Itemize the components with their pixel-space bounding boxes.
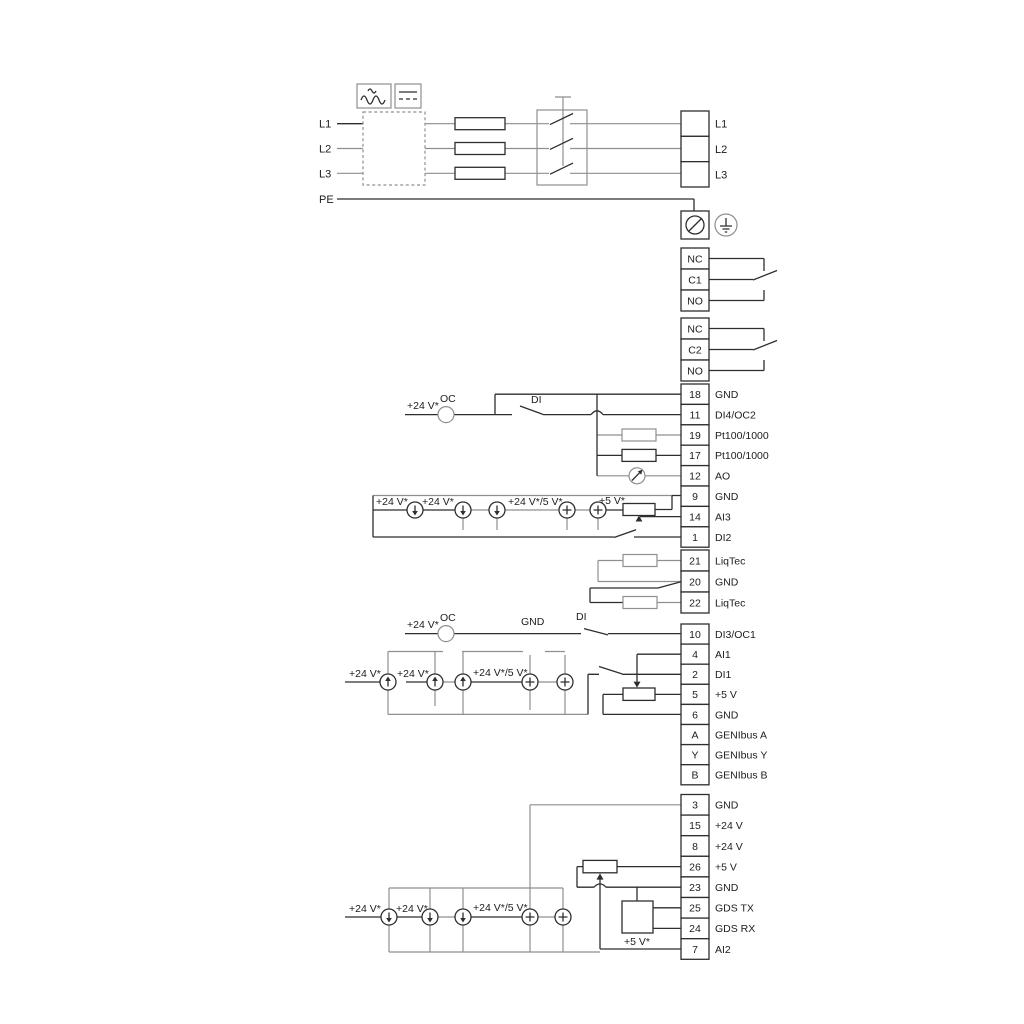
terminal-number: 3 bbox=[692, 800, 698, 812]
terminal-number: 9 bbox=[692, 491, 698, 503]
relay-terminal-label: NC bbox=[687, 253, 703, 265]
phase-input-label: L2 bbox=[319, 144, 331, 156]
terminal-label: +5 V bbox=[715, 861, 737, 873]
label-open-collector: OC bbox=[440, 612, 456, 624]
terminal-label: Pt100/1000 bbox=[715, 450, 769, 462]
black-wires bbox=[337, 114, 777, 950]
terminal-label: DI1 bbox=[715, 669, 732, 681]
terminal-label: LiqTec bbox=[715, 555, 745, 567]
terminal-number: 12 bbox=[689, 471, 701, 483]
terminal-label: GENIbus B bbox=[715, 770, 768, 782]
terminal-number: 2 bbox=[692, 669, 698, 681]
terminal-label: GENIbus A bbox=[715, 729, 767, 741]
terminal-label: GND bbox=[715, 709, 739, 721]
ac-wave-icon bbox=[357, 84, 391, 108]
terminal-label: DI3/OC1 bbox=[715, 629, 756, 641]
label-digital-input: DI bbox=[576, 611, 587, 623]
dc-link-icon bbox=[395, 84, 421, 108]
terminal-number: 26 bbox=[689, 861, 701, 873]
terminal-number: 18 bbox=[689, 389, 701, 401]
relay-terminal-label: C2 bbox=[688, 344, 702, 356]
terminal-number: A bbox=[691, 729, 698, 741]
terminal-label: LiqTec bbox=[715, 597, 745, 609]
power-terminal-label: L2 bbox=[715, 144, 727, 156]
current-source-down-icon bbox=[455, 909, 471, 925]
terminal-number: 23 bbox=[689, 882, 701, 894]
label-supply-24v: +24 V* bbox=[396, 903, 428, 915]
current-source-down-icon bbox=[407, 502, 423, 518]
phase-input-label: L3 bbox=[319, 168, 331, 180]
fuse-icon bbox=[455, 118, 505, 180]
power-terminal-label: L1 bbox=[715, 119, 727, 131]
rfi-filter-box bbox=[363, 112, 425, 185]
voltage-source-plus-icon bbox=[557, 674, 573, 690]
power-terminal-cell bbox=[681, 136, 709, 161]
terminal-number: 4 bbox=[692, 649, 698, 661]
potentiometer-icon bbox=[623, 682, 655, 701]
terminal-number: 10 bbox=[689, 629, 701, 641]
terminal-number: 20 bbox=[689, 576, 701, 588]
terminal-label: +5 V bbox=[715, 689, 737, 701]
terminal-label: GND bbox=[715, 882, 739, 894]
power-terminal-label: L3 bbox=[715, 169, 727, 181]
label-supply-24v: +24 V* bbox=[349, 903, 381, 915]
label-open-collector: OC bbox=[440, 393, 456, 405]
label-supply-24v: +24 V* bbox=[349, 668, 381, 680]
terminal-label: GND bbox=[715, 389, 739, 401]
terminal-number: 22 bbox=[689, 597, 701, 609]
terminal-label: GND bbox=[715, 576, 739, 588]
terminal-label: +24 V bbox=[715, 841, 743, 853]
terminal-number: 14 bbox=[689, 511, 701, 523]
terminal-number: 21 bbox=[689, 555, 701, 567]
voltage-source-plus-icon bbox=[555, 909, 571, 925]
label-supply-24v: +24 V* bbox=[407, 619, 439, 631]
current-source-down-icon bbox=[489, 502, 505, 518]
terminal-number: 25 bbox=[689, 903, 701, 915]
pe-label: PE bbox=[319, 194, 334, 206]
relay-terminal-label: NC bbox=[687, 323, 703, 335]
terminal-label: Pt100/1000 bbox=[715, 430, 769, 442]
terminal-number: 7 bbox=[692, 944, 698, 956]
current-source-up-icon bbox=[427, 674, 443, 690]
terminal-label: AI2 bbox=[715, 944, 731, 956]
relay-terminal-label: NO bbox=[687, 365, 703, 377]
screw-terminal-icon bbox=[681, 211, 709, 239]
terminal-label: AI3 bbox=[715, 511, 731, 523]
relay-terminal-label: NO bbox=[687, 295, 703, 307]
label-gnd: GND bbox=[521, 616, 545, 628]
terminal-number: 24 bbox=[689, 923, 701, 935]
source-symbols bbox=[380, 502, 606, 925]
terminal-label: AO bbox=[715, 471, 730, 483]
terminal-label: GENIbus Y bbox=[715, 749, 767, 761]
label-supply-24v: +24 V* bbox=[422, 496, 454, 508]
resistor-icon bbox=[623, 555, 657, 567]
earth-ground-icon bbox=[715, 214, 737, 236]
terminal-label: DI4/OC2 bbox=[715, 409, 756, 421]
terminal-number: 19 bbox=[689, 430, 701, 442]
label-digital-input: DI bbox=[531, 394, 542, 406]
label-supply-5v: +5 V* bbox=[599, 495, 625, 507]
power-terminal-cell bbox=[681, 162, 709, 187]
terminal-label: GDS TX bbox=[715, 903, 754, 915]
terminal-label: +24 V bbox=[715, 820, 743, 832]
terminal-number: 8 bbox=[692, 841, 698, 853]
terminal-label: GDS RX bbox=[715, 923, 755, 935]
terminal-number: 15 bbox=[689, 820, 701, 832]
phase-input-label: L1 bbox=[319, 119, 331, 131]
resistor-icon bbox=[623, 597, 657, 609]
label-supply-24v: +24 V* bbox=[397, 668, 429, 680]
relay-terminal-label: C1 bbox=[688, 274, 702, 286]
current-source-up-icon bbox=[380, 674, 396, 690]
terminal-number: 1 bbox=[692, 532, 698, 544]
open-collector-icon bbox=[438, 407, 454, 423]
gds-sensor-box bbox=[622, 901, 653, 933]
terminal-label: AI1 bbox=[715, 649, 731, 661]
terminal-number: B bbox=[691, 770, 698, 782]
analog-output-meter-icon bbox=[629, 468, 645, 484]
label-supply-24v: +24 V* bbox=[407, 400, 439, 412]
terminal-label: GND bbox=[715, 491, 739, 503]
terminal-number: 6 bbox=[692, 709, 698, 721]
wiring-diagram-page: L1L2L3NCC1NONCC2NO18GND11DI4/OC219Pt100/… bbox=[0, 0, 1024, 1024]
current-source-up-icon bbox=[455, 674, 471, 690]
open-collector-icon bbox=[438, 626, 454, 642]
current-source-down-icon bbox=[455, 502, 471, 518]
potentiometer-icon bbox=[623, 504, 655, 522]
gray-wires bbox=[337, 97, 681, 952]
resistor-icon bbox=[622, 449, 656, 461]
potentiometer-icon bbox=[583, 860, 617, 879]
terminal-label: DI2 bbox=[715, 532, 732, 544]
resistor-icon bbox=[622, 429, 656, 441]
terminal-number: 5 bbox=[692, 689, 698, 701]
power-terminal-cell bbox=[681, 111, 709, 136]
label-supply-24v-5v: +24 V*/5 V* bbox=[473, 902, 528, 914]
label-supply-24v: +24 V* bbox=[376, 496, 408, 508]
label-supply-5v: +5 V* bbox=[624, 936, 650, 948]
terminal-label: GND bbox=[715, 800, 739, 812]
terminal-number: 17 bbox=[689, 450, 701, 462]
current-source-down-icon bbox=[381, 909, 397, 925]
label-supply-24v-5v: +24 V*/5 V* bbox=[508, 496, 563, 508]
wiring-diagram: L1L2L3NCC1NONCC2NO18GND11DI4/OC219Pt100/… bbox=[0, 0, 1024, 1024]
terminal-number: Y bbox=[691, 749, 698, 761]
label-supply-24v-5v: +24 V*/5 V* bbox=[473, 667, 528, 679]
terminal-number: 11 bbox=[690, 409, 701, 421]
